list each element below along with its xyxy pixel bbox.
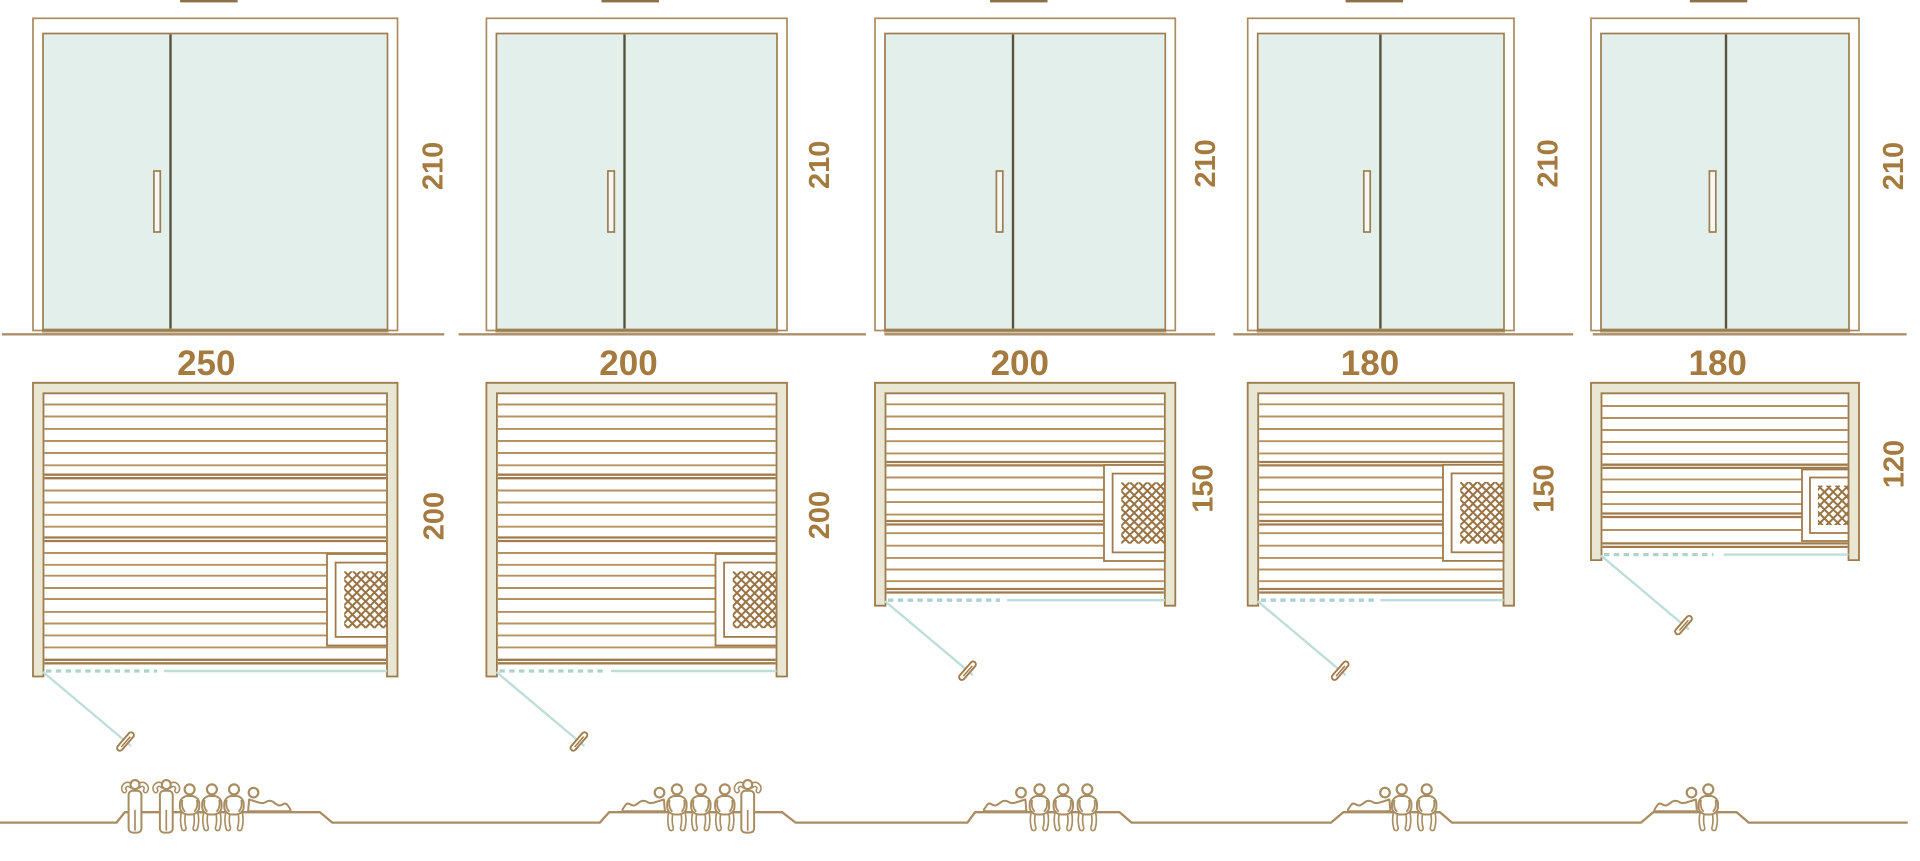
svg-text:150: 150: [1529, 464, 1561, 512]
svg-text:210: 210: [1878, 142, 1910, 190]
svg-text:200: 200: [418, 492, 450, 540]
svg-text:200: 200: [599, 344, 657, 383]
svg-text:120: 120: [1879, 440, 1911, 488]
svg-text:180: 180: [1688, 344, 1746, 383]
svg-text:150: 150: [1188, 464, 1220, 512]
svg-text:250: 250: [177, 344, 235, 383]
svg-text:200: 200: [991, 344, 1049, 383]
svg-text:210: 210: [1190, 139, 1222, 187]
svg-text:210: 210: [1533, 139, 1565, 187]
svg-text:200: 200: [804, 491, 836, 539]
svg-text:210: 210: [804, 141, 836, 189]
svg-text:180: 180: [1341, 344, 1399, 383]
svg-text:210: 210: [417, 142, 449, 190]
